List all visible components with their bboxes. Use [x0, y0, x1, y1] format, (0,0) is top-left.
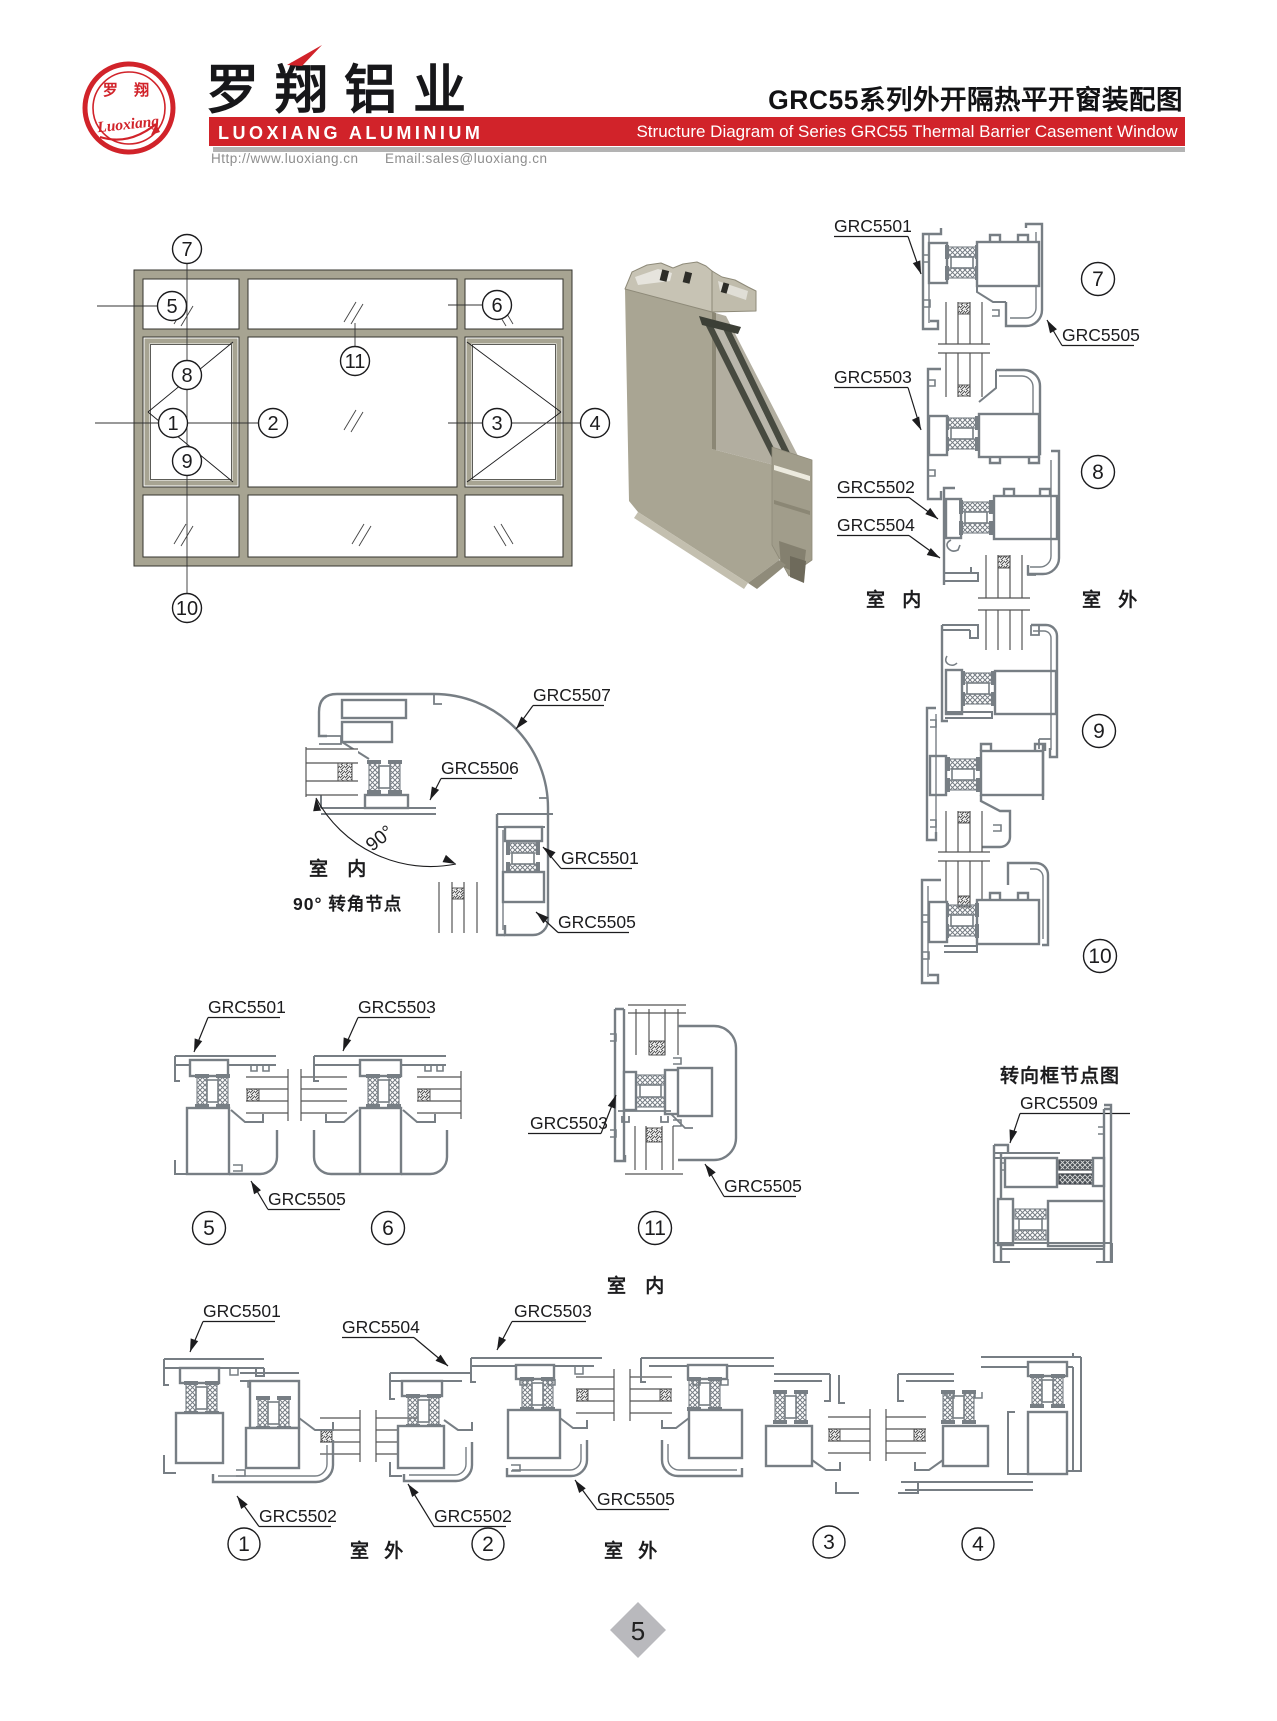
svg-text:GRC5501: GRC5501 [561, 848, 639, 868]
svg-text:Email:sales@luoxiang.cn: Email:sales@luoxiang.cn [385, 151, 548, 166]
svg-text:GRC5501: GRC5501 [208, 997, 286, 1017]
svg-text:10: 10 [1088, 945, 1111, 968]
svg-text:GRC5505: GRC5505 [1062, 325, 1140, 345]
svg-text:4: 4 [589, 413, 600, 435]
svg-text:1: 1 [167, 413, 178, 435]
svg-text:11: 11 [644, 1217, 666, 1240]
svg-text:室 外: 室 外 [604, 1539, 662, 1562]
svg-text:GRC5502: GRC5502 [259, 1506, 337, 1526]
svg-text:LUOXIANG ALUMINIUM: LUOXIANG ALUMINIUM [218, 123, 483, 143]
svg-text:罗翔铝业: 罗翔铝业 [206, 61, 482, 120]
svg-text:6: 6 [382, 1217, 394, 1240]
svg-text:GRC5503: GRC5503 [514, 1301, 592, 1321]
svg-text:GRC5503: GRC5503 [530, 1113, 608, 1133]
svg-text:GRC5505: GRC5505 [597, 1489, 675, 1509]
svg-text:GRC5502: GRC5502 [837, 477, 915, 497]
svg-text:Structure Diagram of Series GR: Structure Diagram of Series GRC55 Therma… [636, 122, 1178, 141]
svg-text:GRC5507: GRC5507 [533, 685, 611, 705]
svg-text:GRC5509: GRC5509 [1020, 1093, 1098, 1113]
svg-text:5: 5 [203, 1217, 215, 1240]
svg-text:GRC5505: GRC5505 [268, 1189, 346, 1209]
svg-text:10: 10 [176, 598, 198, 620]
svg-text:2: 2 [267, 413, 278, 435]
svg-text:室 外: 室 外 [350, 1539, 408, 1562]
svg-text:GRC5504: GRC5504 [342, 1317, 420, 1337]
svg-text:GRC5503: GRC5503 [834, 367, 912, 387]
svg-text:5: 5 [631, 1616, 645, 1646]
svg-text:GRC5505: GRC5505 [724, 1176, 802, 1196]
svg-text:9: 9 [1093, 720, 1105, 743]
svg-text:室 外: 室 外 [1082, 588, 1143, 611]
svg-text:90° 转角节点: 90° 转角节点 [293, 894, 402, 914]
svg-text:6: 6 [491, 295, 502, 317]
svg-text:3: 3 [823, 1531, 835, 1554]
svg-text:GRC5505: GRC5505 [558, 912, 636, 932]
svg-text:GRC5502: GRC5502 [434, 1506, 512, 1526]
svg-text:7: 7 [181, 239, 192, 261]
svg-text:4: 4 [972, 1533, 984, 1556]
svg-text:GRC5506: GRC5506 [441, 758, 519, 778]
svg-text:转向框节点图: 转向框节点图 [1000, 1064, 1120, 1087]
svg-text:3: 3 [491, 413, 502, 435]
svg-text:GRC55系列外开隔热平开窗装配图: GRC55系列外开隔热平开窗装配图 [768, 85, 1183, 115]
svg-text:5: 5 [166, 296, 177, 318]
svg-text:GRC5504: GRC5504 [837, 515, 915, 535]
svg-text:8: 8 [181, 365, 192, 387]
svg-text:7: 7 [1092, 268, 1104, 291]
svg-text:2: 2 [482, 1533, 494, 1556]
svg-text:室 内: 室 内 [866, 588, 927, 611]
svg-text:11: 11 [345, 351, 366, 373]
svg-text:室 内: 室 内 [309, 857, 373, 880]
svg-text:1: 1 [238, 1533, 250, 1556]
svg-text:Http://www.luoxiang.cn: Http://www.luoxiang.cn [211, 151, 359, 166]
svg-text:室 内: 室 内 [607, 1274, 671, 1297]
svg-text:GRC5501: GRC5501 [203, 1301, 281, 1321]
svg-text:9: 9 [181, 451, 192, 473]
svg-text:GRC5501: GRC5501 [834, 216, 912, 236]
svg-text:GRC5503: GRC5503 [358, 997, 436, 1017]
svg-text:罗 翔: 罗 翔 [103, 81, 155, 99]
svg-text:8: 8 [1092, 461, 1104, 484]
